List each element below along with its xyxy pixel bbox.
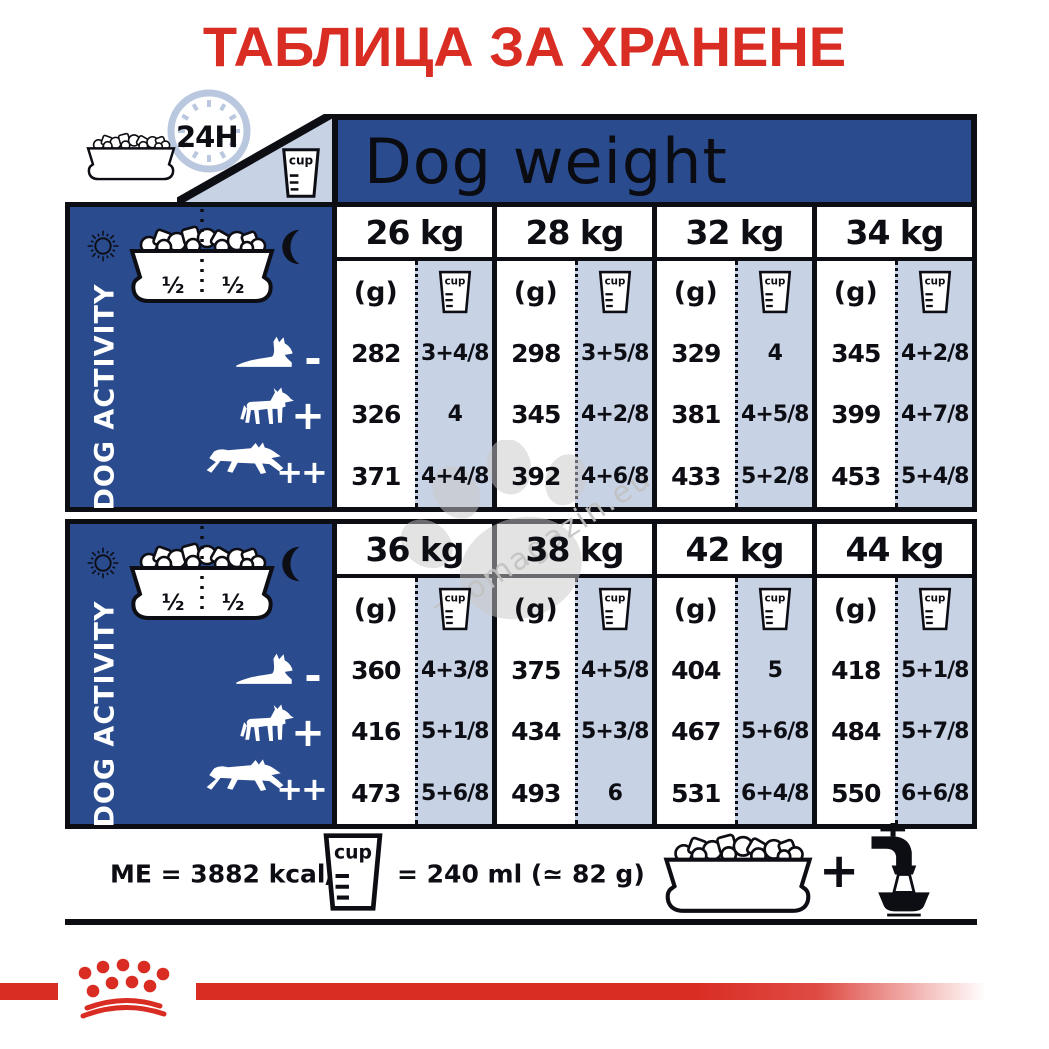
half-portion-left: ½: [162, 274, 185, 299]
dog-weight-label: Dog weight: [364, 125, 728, 198]
measuring-cup-icon: [284, 150, 318, 197]
grams-unit-label: (g): [674, 594, 718, 625]
cups-value: 6+4/8: [738, 763, 813, 824]
measuring-cup-icon: [320, 833, 386, 911]
cups-value: 4: [418, 384, 493, 445]
footer-legend: ME = 3882 kcal/kg = 240 ml (≃ 82 g) +: [65, 829, 977, 925]
cup-equivalence-label: = 240 ml (≃ 82 g): [397, 860, 645, 889]
cups-value: 4+3/8: [418, 640, 493, 701]
cups-value: 5+7/8: [898, 701, 973, 762]
cups-value: 5+1/8: [898, 640, 973, 701]
grams-value: 453: [817, 446, 895, 507]
weight-column-28kg: 28 kg (g) 298 345 392 3+5/8 4+2/8 4+6/8: [492, 207, 652, 507]
grams-unit-label: (g): [834, 594, 878, 625]
grams-value: 550: [817, 763, 895, 824]
cups-subcolumn: 5 5+6/8 6+4/8: [735, 578, 813, 824]
cups-value: 4+2/8: [898, 323, 973, 384]
grams-unit-label: (g): [834, 277, 878, 308]
cups-value: 4+5/8: [578, 640, 653, 701]
cups-subcolumn: 3+4/8 4 4+4/8: [415, 261, 493, 507]
weight-header: 32 kg: [686, 213, 784, 252]
cups-subcolumn: 4 4+5/8 5+2/8: [735, 261, 813, 507]
grams-value: 467: [657, 701, 735, 762]
grams-value: 493: [497, 763, 575, 824]
food-bowl-icon: [657, 831, 819, 917]
grams-subcolumn: (g) 282 326 371: [337, 261, 415, 507]
activity-symbol-high: ++: [276, 456, 326, 488]
activity-symbol-low: -: [304, 338, 321, 380]
half-portion-right: ½: [222, 274, 245, 299]
grams-value: 329: [657, 323, 735, 384]
activity-symbol-normal: +: [291, 713, 325, 753]
activity-symbol-low: -: [304, 655, 321, 697]
grams-value: 473: [337, 763, 415, 824]
royal-canin-crown-logo: [58, 944, 196, 1026]
weight-column-32kg: 32 kg (g) 329 381 433 4 4+5/8 5+2/8: [652, 207, 812, 507]
cups-value: 4+7/8: [898, 384, 973, 445]
grams-unit-label: (g): [674, 277, 718, 308]
running-dog-icon: [206, 437, 284, 482]
grams-value: 433: [657, 446, 735, 507]
grams-unit-label: (g): [354, 594, 398, 625]
dog-activity-sidebar: ½ ½ DOG ACTIVITY - + ++: [70, 207, 337, 507]
grams-value: 345: [817, 323, 895, 384]
grams-value: 326: [337, 384, 415, 445]
measuring-cup-icon: [918, 587, 952, 631]
grams-value: 381: [657, 384, 735, 445]
half-portion-left: ½: [162, 591, 185, 616]
cups-value: 5+1/8: [418, 701, 493, 762]
dog-activity-sidebar: ½ ½ DOG ACTIVITY - + ++: [70, 524, 337, 824]
half-half-bowl-icon: ½ ½: [125, 526, 279, 626]
activity-symbol-high: ++: [276, 773, 326, 805]
cups-subcolumn: 3+5/8 4+2/8 4+6/8: [575, 261, 653, 507]
cups-subcolumn: 4+2/8 4+7/8 5+4/8: [895, 261, 973, 507]
cups-value: 4: [738, 323, 813, 384]
sun-icon: [80, 221, 126, 271]
weight-header: 42 kg: [686, 530, 784, 569]
cups-value: 6+6/8: [898, 763, 973, 824]
measuring-cup-icon: [758, 587, 792, 631]
cups-value: 4+5/8: [738, 384, 813, 445]
24h-label: 24H: [176, 120, 238, 154]
lying-dog-icon: [235, 651, 293, 689]
grams-value: 360: [337, 640, 415, 701]
grams-value: 399: [817, 384, 895, 445]
cups-value: 5+3/8: [578, 701, 653, 762]
food-bowl-icon: [85, 126, 177, 188]
grams-value: 531: [657, 763, 735, 824]
cups-value: 5+2/8: [738, 446, 813, 507]
measuring-cup-icon: [918, 270, 952, 314]
measuring-cup-icon: [598, 270, 632, 314]
water-tap-icon: [857, 823, 933, 917]
feeding-table-section-1: ½ ½ DOG ACTIVITY - + ++ 26 kg (g) 282 32…: [65, 202, 977, 512]
dog-weight-band: Dog weight: [332, 114, 977, 202]
cups-subcolumn: 5+1/8 5+7/8 6+6/8: [895, 578, 973, 824]
weight-header: 38 kg: [526, 530, 624, 569]
grams-value: 434: [497, 701, 575, 762]
grams-subcolumn: (g) 345 399 453: [817, 261, 895, 507]
cups-value: 5: [738, 640, 813, 701]
activity-symbol-normal: +: [291, 396, 325, 436]
grams-subcolumn: (g) 329 381 433: [657, 261, 735, 507]
dog-activity-label: DOG ACTIVITY: [90, 283, 121, 510]
grams-value: 392: [497, 446, 575, 507]
measuring-cup-icon: [438, 270, 472, 314]
cups-value: 5+6/8: [738, 701, 813, 762]
weight-header: 26 kg: [366, 213, 464, 252]
grams-value: 282: [337, 323, 415, 384]
measuring-cup-icon: [598, 587, 632, 631]
grams-subcolumn: (g) 404 467 531: [657, 578, 735, 824]
grams-value: 371: [337, 446, 415, 507]
weight-column-44kg: 44 kg (g) 418 484 550 5+1/8 5+7/8 6+6/8: [812, 524, 972, 824]
cups-value: 5+6/8: [418, 763, 493, 824]
standing-dog-icon: [239, 699, 297, 749]
grams-unit-label: (g): [514, 277, 558, 308]
measuring-cup-icon: [758, 270, 792, 314]
cups-value: 3+4/8: [418, 323, 493, 384]
half-portion-right: ½: [222, 591, 245, 616]
plus-sign: +: [819, 843, 859, 899]
sun-icon: [80, 538, 126, 588]
weight-header: 28 kg: [526, 213, 624, 252]
grams-value: 416: [337, 701, 415, 762]
weight-header: 34 kg: [846, 213, 944, 252]
grams-value: 484: [817, 701, 895, 762]
grams-value: 298: [497, 323, 575, 384]
cups-value: 4+4/8: [418, 446, 493, 507]
standing-dog-icon: [239, 382, 297, 432]
grams-subcolumn: (g) 298 345 392: [497, 261, 575, 507]
cups-value: 6: [578, 763, 653, 824]
weight-column-42kg: 42 kg (g) 404 467 531 5 5+6/8 6+4/8: [652, 524, 812, 824]
grams-value: 404: [657, 640, 735, 701]
weight-column-34kg: 34 kg (g) 345 399 453 4+2/8 4+7/8 5+4/8: [812, 207, 972, 507]
grams-value: 375: [497, 640, 575, 701]
measuring-cup-icon: [438, 587, 472, 631]
grams-value: 345: [497, 384, 575, 445]
moon-icon: [280, 228, 310, 266]
cups-value: 3+5/8: [578, 323, 653, 384]
grams-unit-label: (g): [514, 594, 558, 625]
weight-header: 36 kg: [366, 530, 464, 569]
weight-header: 44 kg: [846, 530, 944, 569]
cups-value: 5+4/8: [898, 446, 973, 507]
lying-dog-icon: [235, 334, 293, 372]
dog-activity-label: DOG ACTIVITY: [90, 600, 121, 827]
running-dog-icon: [206, 754, 284, 799]
moon-icon: [280, 545, 310, 583]
grams-value: 418: [817, 640, 895, 701]
grams-subcolumn: (g) 418 484 550: [817, 578, 895, 824]
cups-value: 4+2/8: [578, 384, 653, 445]
grams-unit-label: (g): [354, 277, 398, 308]
half-half-bowl-icon: ½ ½: [125, 209, 279, 309]
page-title: ТАБЛИЦА ЗА ХРАНЕНЕ: [0, 14, 1049, 79]
cups-value: 4+6/8: [578, 446, 653, 507]
